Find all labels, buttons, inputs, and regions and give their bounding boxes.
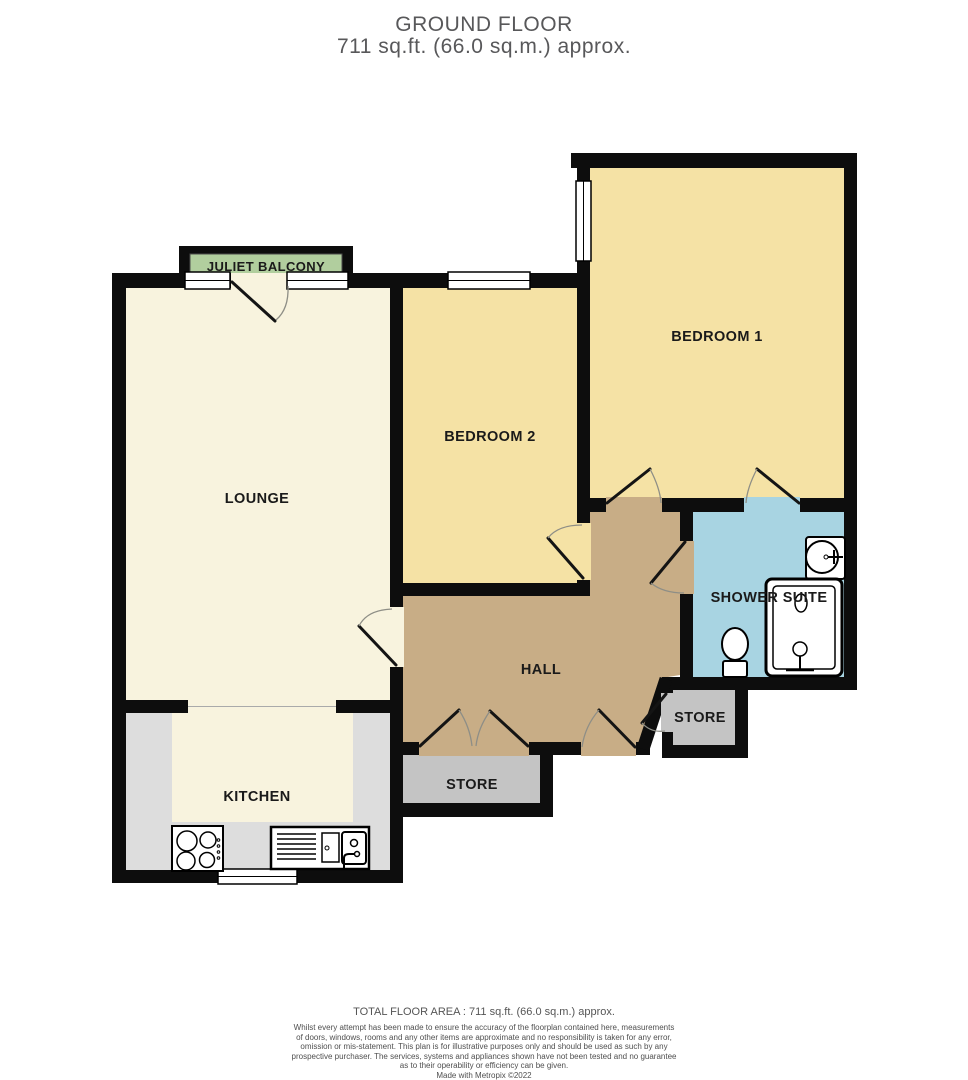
basin-fixture (806, 537, 845, 579)
sink-unit-fixture (271, 827, 369, 869)
juliet-balcony-label: JULIET BALCONY (207, 259, 325, 274)
toilet-fixture (722, 628, 748, 677)
plan-footer: TOTAL FLOOR AREA : 711 sq.ft. (66.0 sq.m… (0, 1006, 968, 1080)
total-floor-area: TOTAL FLOOR AREA : 711 sq.ft. (66.0 sq.m… (0, 1006, 968, 1018)
disclaimer-text: Whilst every attempt has been made to en… (0, 1023, 968, 1071)
lounge-label: LOUNGE (225, 491, 289, 507)
floorplan-page: GROUND FLOOR 711 sq.ft. (66.0 sq.m.) app… (0, 0, 968, 1080)
hob-fixture (172, 826, 223, 871)
bedroom1-label: BEDROOM 1 (671, 329, 762, 345)
kitchen-label: KITCHEN (223, 789, 290, 805)
metropix-credit: Made with Metropix ©2022 (0, 1071, 968, 1080)
store-hall-label: STORE (446, 777, 498, 793)
floorplan-drawing: JULIET BALCONY LOUNGE BEDROOM 2 BEDROOM … (0, 0, 968, 1080)
bedroom2-label: BEDROOM 2 (444, 429, 535, 445)
store-inner-label: STORE (674, 710, 726, 726)
shower-suite-label: SHOWER SUITE (711, 590, 828, 606)
hall-label: HALL (521, 662, 561, 678)
